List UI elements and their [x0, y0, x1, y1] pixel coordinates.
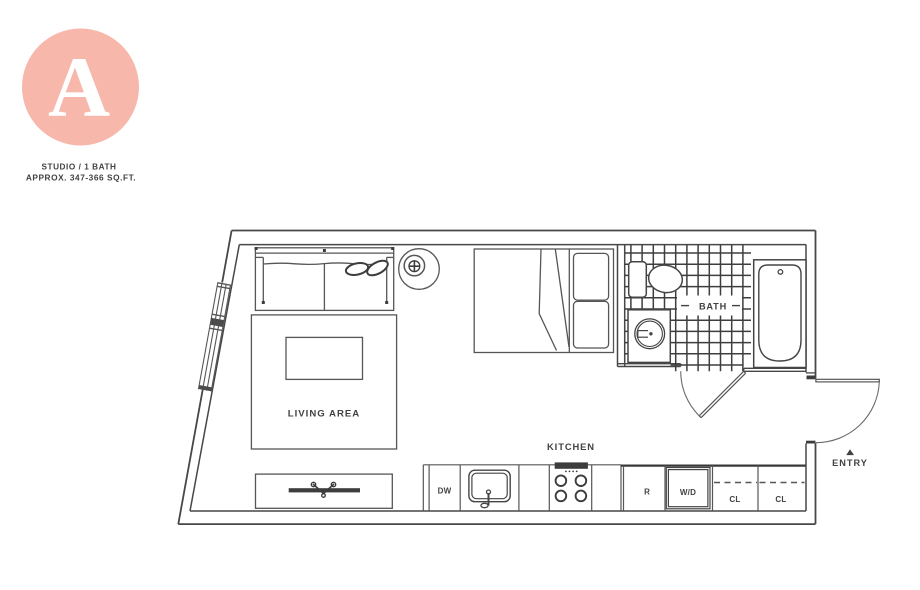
svg-text:ENTRY: ENTRY	[832, 458, 868, 468]
svg-text:CL: CL	[775, 495, 786, 504]
svg-text:STUDIO / 1 BATH: STUDIO / 1 BATH	[42, 163, 117, 172]
svg-text:W/D: W/D	[680, 488, 696, 497]
svg-text:LIVING AREA: LIVING AREA	[288, 408, 360, 419]
svg-text:A: A	[48, 39, 110, 135]
svg-text:DW: DW	[438, 487, 452, 496]
svg-text:KITCHEN: KITCHEN	[547, 441, 595, 452]
svg-text:CL: CL	[729, 495, 740, 504]
svg-text:BATH: BATH	[699, 302, 727, 312]
svg-text:R: R	[644, 488, 650, 497]
svg-text:APPROX. 347-366 SQ.FT.: APPROX. 347-366 SQ.FT.	[26, 173, 136, 183]
